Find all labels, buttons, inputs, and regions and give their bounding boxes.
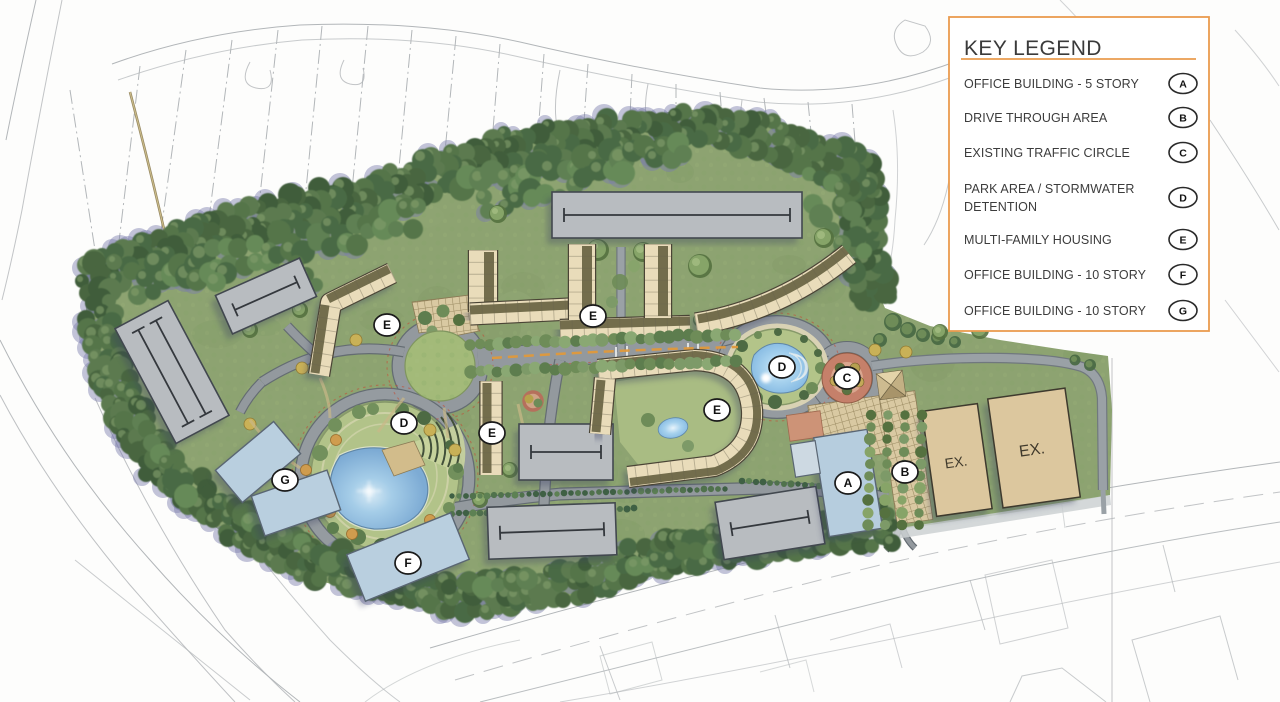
svg-text:PARK AREA / STORMWATER: PARK AREA / STORMWATER xyxy=(964,182,1135,196)
svg-text:MULTI-FAMILY HOUSING: MULTI-FAMILY HOUSING xyxy=(964,233,1112,247)
svg-text:DRIVE THROUGH AREA: DRIVE THROUGH AREA xyxy=(964,111,1108,125)
svg-text:C: C xyxy=(843,371,852,385)
svg-text:F: F xyxy=(1180,269,1187,281)
svg-text:EX.: EX. xyxy=(944,453,969,472)
svg-text:C: C xyxy=(1179,147,1187,159)
svg-text:D: D xyxy=(400,416,409,430)
svg-text:A: A xyxy=(844,476,853,490)
svg-text:G: G xyxy=(1179,305,1187,317)
svg-text:KEY LEGEND: KEY LEGEND xyxy=(964,37,1102,60)
svg-text:A: A xyxy=(1179,78,1187,90)
svg-text:E: E xyxy=(713,403,721,417)
svg-text:D: D xyxy=(778,360,787,374)
svg-text:OFFICE BUILDING - 5 STORY: OFFICE BUILDING - 5 STORY xyxy=(964,77,1140,91)
svg-text:B: B xyxy=(1179,112,1187,124)
svg-text:EX.: EX. xyxy=(1018,440,1046,460)
svg-text:E: E xyxy=(383,318,391,332)
svg-text:E: E xyxy=(589,309,597,323)
svg-text:F: F xyxy=(404,556,411,570)
svg-text:E: E xyxy=(488,426,496,440)
svg-text:DETENTION: DETENTION xyxy=(964,200,1037,214)
svg-text:D: D xyxy=(1179,192,1187,204)
svg-text:OFFICE BUILDING - 10 STORY: OFFICE BUILDING - 10 STORY xyxy=(964,304,1147,318)
svg-text:E: E xyxy=(1179,234,1186,246)
svg-text:G: G xyxy=(280,473,289,487)
svg-text:EXISTING TRAFFIC CIRCLE: EXISTING TRAFFIC CIRCLE xyxy=(964,146,1130,160)
svg-text:B: B xyxy=(901,465,910,479)
svg-text:OFFICE BUILDING - 10 STORY: OFFICE BUILDING - 10 STORY xyxy=(964,268,1147,282)
